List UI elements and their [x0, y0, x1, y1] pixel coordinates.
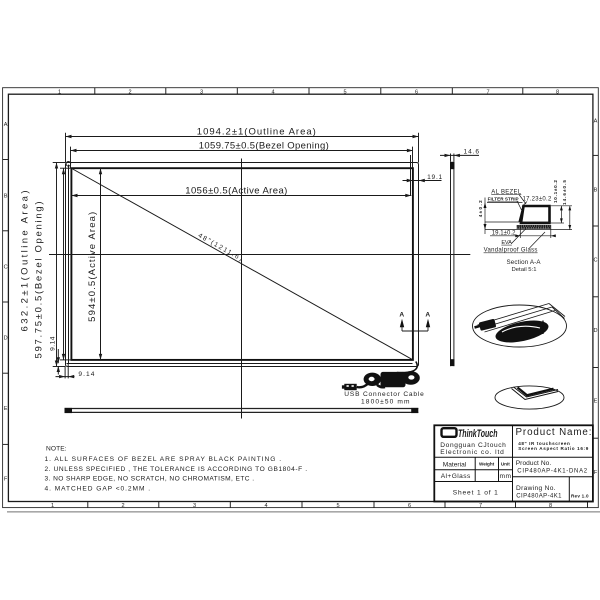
svg-text:4: 4 [264, 503, 267, 509]
svg-text:7: 7 [479, 503, 482, 509]
svg-text:NOTE:: NOTE: [46, 446, 67, 453]
svg-text:9.14: 9.14 [78, 371, 95, 378]
svg-text:Vandalproof Glass: Vandalproof Glass [484, 248, 538, 254]
svg-text:CIP480AP-4K1-DNA2: CIP480AP-4K1-DNA2 [517, 469, 587, 475]
svg-text:1800±50 mm: 1800±50 mm [361, 399, 410, 406]
svg-text:2: 2 [128, 89, 131, 95]
svg-text:AL BEZEL: AL BEZEL [491, 189, 521, 195]
svg-text:2. UNLESS SPECIFIED , THE TOLE: 2. UNLESS SPECIFIED , THE TOLERANCE IS A… [45, 466, 308, 473]
svg-text:FILTER STRIP: FILTER STRIP [488, 196, 519, 201]
svg-text:14.6: 14.6 [464, 148, 480, 155]
svg-text:19.1: 19.1 [427, 174, 443, 181]
svg-text:Dongguan CJtouch: Dongguan CJtouch [440, 442, 506, 449]
svg-text:Section A-A: Section A-A [507, 259, 542, 266]
svg-text:10.1±0.2: 10.1±0.2 [553, 180, 558, 203]
svg-text:F: F [4, 477, 8, 483]
svg-text:1094.2±1(Outline Area): 1094.2±1(Outline Area) [197, 127, 316, 138]
svg-text:E: E [4, 406, 8, 412]
svg-text:6: 6 [415, 89, 418, 95]
svg-text:8: 8 [549, 503, 552, 509]
svg-text:Drawing No.: Drawing No. [516, 485, 556, 492]
svg-text:Material: Material [443, 461, 467, 468]
svg-text:E: E [594, 399, 598, 405]
svg-text:1. ALL SURFACES OF BEZEL ARE S: 1. ALL SURFACES OF BEZEL ARE SPRAY BLACK… [45, 456, 282, 463]
svg-text:B: B [4, 193, 8, 199]
svg-text:Screen Aspect Ratio 16:9: Screen Aspect Ratio 16:9 [518, 446, 588, 451]
svg-text:EVA: EVA [501, 240, 512, 246]
svg-text:597.75±0.5(Bezel Opening): 597.75±0.5(Bezel Opening) [33, 202, 44, 359]
svg-text:8: 8 [556, 89, 559, 95]
svg-text:Product No.: Product No. [516, 460, 552, 467]
svg-text:A: A [4, 122, 8, 128]
svg-text:Electronic co. ltd: Electronic co. ltd [440, 449, 504, 456]
svg-text:1: 1 [51, 503, 54, 509]
svg-text:1056±0.5(Active Area): 1056±0.5(Active Area) [185, 185, 287, 196]
svg-text:USB Connector Cable: USB Connector Cable [344, 391, 424, 398]
svg-text:Detail 5:1: Detail 5:1 [512, 267, 537, 273]
svg-text:A: A [425, 312, 430, 319]
svg-text:6: 6 [408, 503, 411, 509]
svg-text:D: D [593, 328, 597, 334]
svg-text:ThinkTouch: ThinkTouch [458, 428, 498, 440]
svg-text:7: 7 [486, 89, 489, 95]
svg-text:14.6±0.5: 14.6±0.5 [562, 180, 567, 205]
svg-text:Al+Glass: Al+Glass [441, 473, 471, 480]
svg-text:Sheet 1 of 1: Sheet 1 of 1 [453, 489, 499, 496]
svg-text:D: D [4, 335, 8, 341]
svg-text:mm: mm [500, 473, 512, 480]
svg-text:3. NO SHARP EDGE, NO SCRATCH,: 3. NO SHARP EDGE, NO SCRATCH, NO CHROMAT… [45, 476, 255, 483]
svg-text:A: A [399, 312, 404, 319]
svg-text:Product Name:: Product Name: [516, 427, 592, 438]
svg-text:C: C [4, 264, 8, 270]
svg-text:3: 3 [200, 89, 203, 95]
svg-text:C: C [593, 258, 597, 264]
svg-text:CIP480AP-4K1: CIP480AP-4K1 [516, 493, 562, 499]
svg-text:594±0.5(Active Area): 594±0.5(Active Area) [87, 212, 98, 322]
svg-text:19.1±0.2: 19.1±0.2 [492, 231, 516, 237]
svg-text:Weight: Weight [479, 462, 495, 467]
svg-text:A: A [594, 118, 598, 124]
svg-text:Rev 1.0: Rev 1.0 [571, 493, 589, 498]
svg-text:B: B [594, 188, 598, 194]
svg-text:1059.75±0.5(Bezel Opening): 1059.75±0.5(Bezel Opening) [199, 140, 329, 151]
svg-text:5: 5 [343, 89, 346, 95]
svg-text:9.14: 9.14 [50, 336, 57, 351]
svg-text:Unit: Unit [501, 462, 510, 467]
svg-text:4. MATCHED GAP <0.2MM .: 4. MATCHED GAP <0.2MM . [45, 486, 151, 493]
svg-text:1: 1 [58, 89, 61, 95]
svg-text:2: 2 [121, 503, 124, 509]
svg-text:3: 3 [193, 503, 196, 509]
svg-text:4: 4 [271, 89, 274, 95]
svg-text:F: F [594, 470, 598, 476]
svg-text:5: 5 [336, 503, 339, 509]
